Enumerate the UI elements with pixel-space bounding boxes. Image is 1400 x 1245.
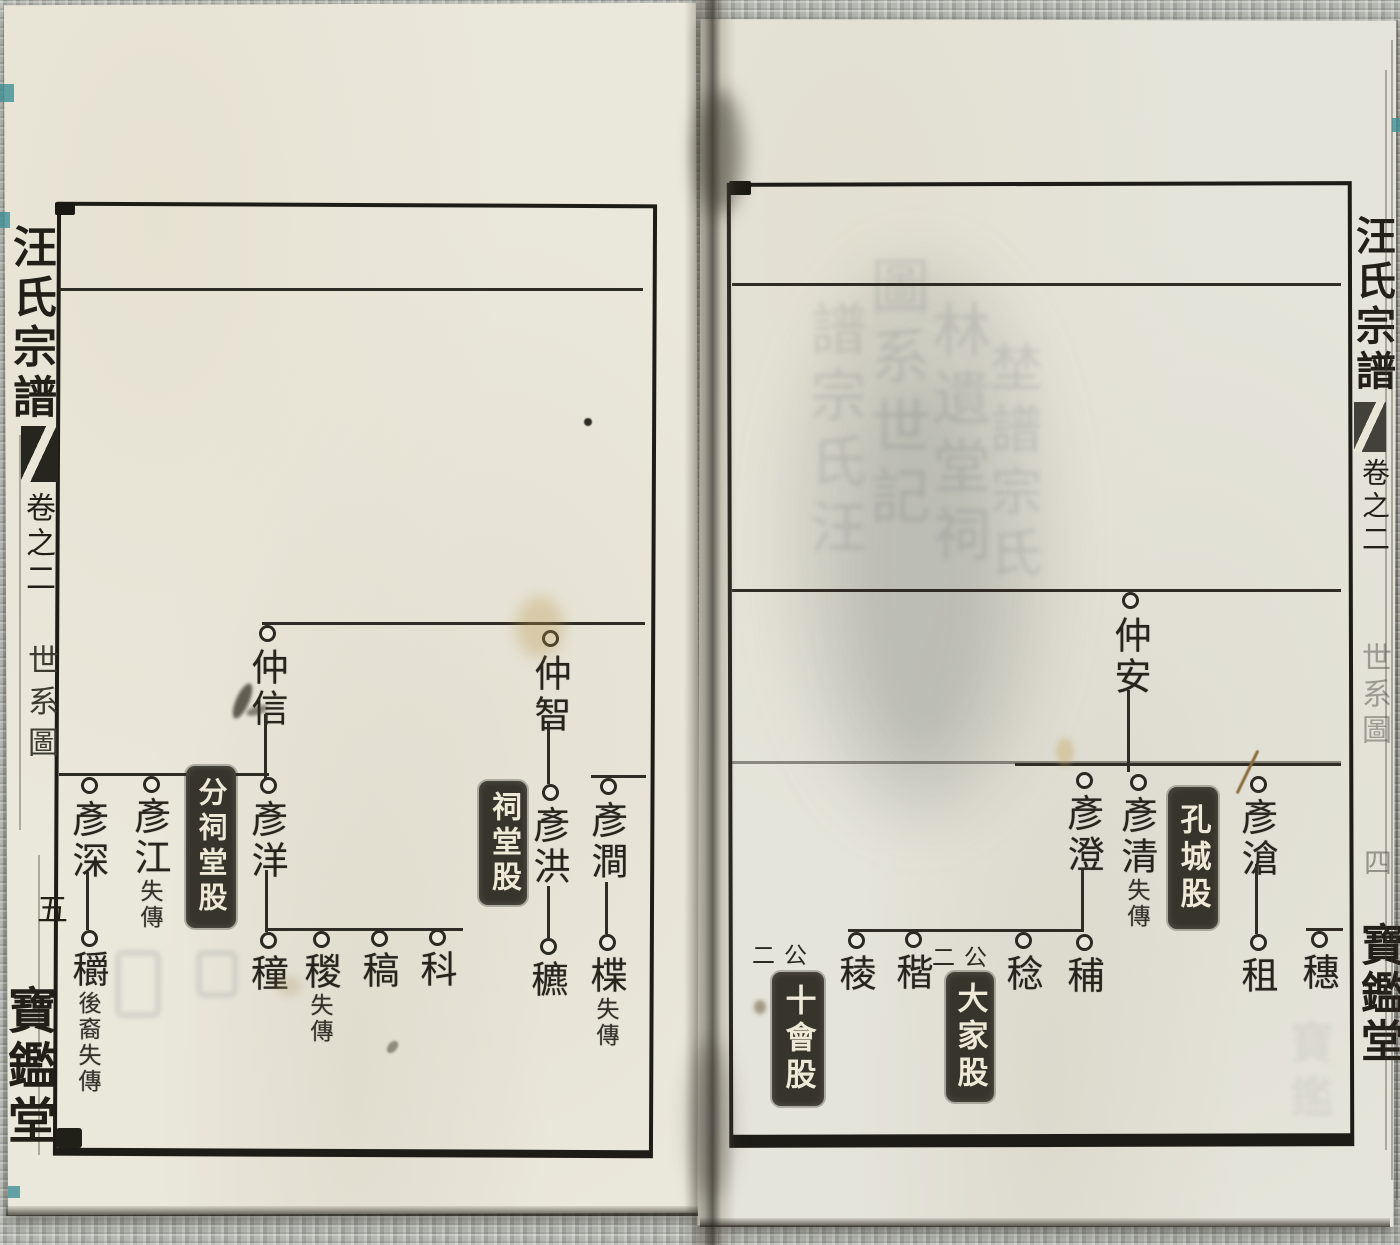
lost-lineage-note: 失傳 xyxy=(592,997,618,1049)
connector-line xyxy=(605,882,608,934)
connector-line xyxy=(547,722,550,784)
name-text: 彥洪 xyxy=(527,806,570,888)
connector-line xyxy=(1081,868,1084,932)
person-name: 彥洪 xyxy=(530,806,567,888)
name-text: 稿 xyxy=(356,951,399,992)
name-text: 穗 xyxy=(1296,953,1339,994)
person-name: 秿 xyxy=(1064,956,1101,997)
generation-rule xyxy=(59,773,269,776)
connector-line xyxy=(547,886,550,938)
person-node xyxy=(81,777,98,794)
person-name: 彥深 xyxy=(69,800,106,882)
person-node xyxy=(600,778,617,795)
hall-name: 寶鑑堂 xyxy=(1356,922,1400,1066)
person-name: 稜 xyxy=(836,954,873,995)
book-title: 汪氏宗譜 xyxy=(8,224,52,424)
person-name: 稯失傳 xyxy=(301,952,338,1045)
person-node xyxy=(1130,774,1147,791)
name-text: 楪 xyxy=(584,956,627,997)
sheet-bottom-edge xyxy=(6,1206,698,1216)
name-text: 穮 xyxy=(525,960,568,1001)
person-name: 穗 xyxy=(1299,953,1336,994)
lost-lineage-note: 失傳 xyxy=(1123,878,1149,930)
person-node xyxy=(313,931,330,948)
hall-name: 寶鑑堂 xyxy=(4,985,53,1150)
mat-fleck xyxy=(1392,118,1400,132)
generation-rule xyxy=(591,775,646,778)
name-text: 彥澄 xyxy=(1061,794,1104,876)
lost-lineage-note: 後裔失傳 xyxy=(74,991,100,1095)
name-text: 稭 xyxy=(890,953,933,994)
person-node xyxy=(542,784,559,801)
person-name: 仲安 xyxy=(1111,616,1148,698)
section-label: 世系圖 xyxy=(24,644,55,767)
person-node xyxy=(371,930,388,947)
fishtail-mark xyxy=(1354,402,1386,452)
branch-box-citang: 祠堂股 xyxy=(479,781,527,905)
branch-box-kongcheng: 孔城股 xyxy=(1168,787,1218,929)
name-text: 稯 xyxy=(298,952,341,993)
person-node xyxy=(1250,776,1267,793)
branch-box-fen-citang: 分祠堂股 xyxy=(186,766,236,928)
branch-prefix: 二公 xyxy=(752,936,816,970)
name-text: 稜 xyxy=(833,954,876,995)
page-number: 五 xyxy=(33,893,64,924)
lost-lineage-note: 失傳 xyxy=(306,993,332,1045)
fishtail-mark xyxy=(21,426,58,482)
name-text: 穱 xyxy=(66,950,109,991)
branch-box-shihui: 十會股 xyxy=(772,972,824,1106)
name-text: 秿 xyxy=(1061,956,1104,997)
person-name: 穱後裔失傳 xyxy=(69,950,106,1095)
name-text: 彥深 xyxy=(66,800,109,882)
fold-seam xyxy=(684,0,736,1245)
mat-fleck xyxy=(0,212,10,228)
connector-line xyxy=(1255,864,1258,934)
branch-box-dajia: 大家股 xyxy=(946,972,994,1102)
person-node xyxy=(143,776,160,793)
person-node xyxy=(1076,772,1093,789)
name-text: 科 xyxy=(414,950,457,991)
person-node xyxy=(259,625,276,642)
person-node xyxy=(542,630,559,647)
sheet-bottom-edge xyxy=(700,1218,1390,1227)
person-name: 稿 xyxy=(359,951,396,992)
person-node xyxy=(1015,932,1032,949)
person-node xyxy=(81,930,98,947)
mat-fleck xyxy=(8,1186,20,1198)
name-text: 彥清 xyxy=(1115,796,1158,878)
person-node xyxy=(429,929,446,946)
person-name: 彥江失傳 xyxy=(131,797,168,931)
person-name: 稔 xyxy=(1003,954,1040,995)
person-node xyxy=(1311,931,1328,948)
name-text: 彥江 xyxy=(128,797,171,879)
section-label: 世系圖 xyxy=(1358,642,1388,750)
person-name: 科 xyxy=(417,950,454,991)
name-text: 穜 xyxy=(245,954,288,995)
sibling-bar xyxy=(848,929,1084,932)
name-text: 稔 xyxy=(1000,954,1043,995)
person-node xyxy=(260,932,277,949)
mat-fleck xyxy=(0,84,14,102)
volume-label: 卷之二 xyxy=(22,492,52,597)
person-node xyxy=(905,931,922,948)
sibling-bar xyxy=(1306,928,1343,931)
person-node xyxy=(260,777,277,794)
person-name: 穮 xyxy=(528,960,565,1001)
name-text: 租 xyxy=(1235,956,1278,997)
lost-lineage-note: 失傳 xyxy=(136,879,162,931)
generation-rule xyxy=(732,589,1341,592)
branch-prefix: 二公 xyxy=(932,938,996,972)
connector-line xyxy=(86,872,89,930)
person-node xyxy=(599,934,616,951)
generation-rule xyxy=(1015,763,1341,766)
generation-rule xyxy=(262,622,645,625)
header-rule-left xyxy=(59,288,643,291)
person-node xyxy=(1076,934,1093,951)
person-name: 楪失傳 xyxy=(587,956,624,1049)
name-text: 彥澗 xyxy=(585,801,628,883)
person-name: 稭 xyxy=(893,953,930,994)
person-name: 穜 xyxy=(248,954,285,995)
connector-line xyxy=(265,870,268,932)
connector-line xyxy=(264,714,267,780)
person-node xyxy=(1122,592,1139,609)
person-name: 彥澄 xyxy=(1064,794,1101,876)
fold-crease xyxy=(1391,40,1393,1180)
name-text: 仲安 xyxy=(1108,616,1151,698)
fold-crease xyxy=(1396,20,1398,1200)
header-rule-right xyxy=(732,283,1341,286)
fold-crease xyxy=(1385,70,1387,1150)
person-node xyxy=(848,932,865,949)
person-name: 租 xyxy=(1238,956,1275,997)
genealogy-scan: 譜宗氏汪 圖系世記 林遺堂祠 埜譜宗氏 寶鑑 仲信 仲智 彥深 彥江失傳 分祠堂… xyxy=(0,0,1400,1245)
connector-line xyxy=(1127,690,1130,772)
person-node xyxy=(540,938,557,955)
person-node xyxy=(1250,934,1267,951)
volume-label: 卷之二 xyxy=(1360,458,1388,557)
person-name: 彥澗 xyxy=(588,801,625,883)
person-name: 彥清失傳 xyxy=(1118,796,1155,930)
